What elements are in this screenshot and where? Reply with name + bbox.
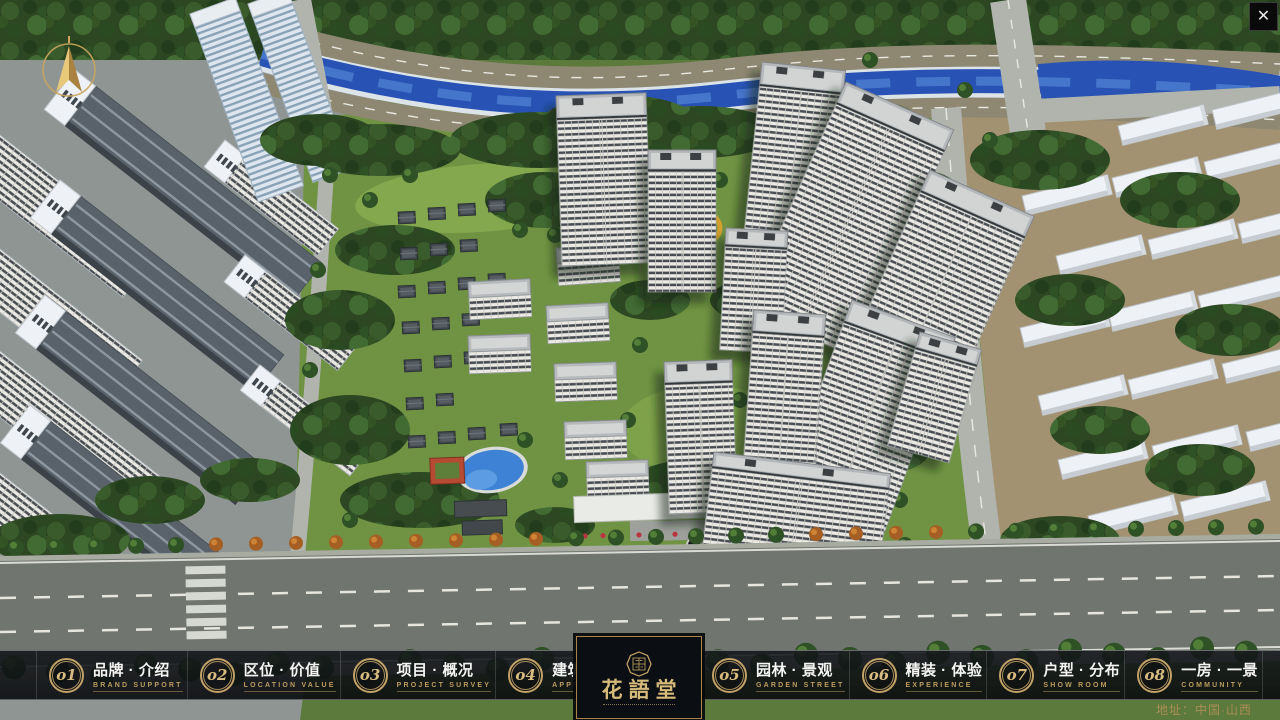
logo-divider <box>603 704 675 705</box>
nav-title: 项目 · 概况 <box>397 659 491 680</box>
nav-subtitle: EXPERIENCE <box>906 682 983 692</box>
nav-title: 品牌 · 介绍 <box>93 659 183 680</box>
nav-number-badge: o7 <box>999 658 1034 693</box>
nav-subtitle: SHOW ROOM <box>1043 682 1120 692</box>
nav-item-brand[interactable]: o1 品牌 · 介绍 BRAND SUPPORT <box>37 651 188 699</box>
nav-group-left: o1 品牌 · 介绍 BRAND SUPPORT o2 区位 · 价值 LOCA… <box>36 651 578 699</box>
nav-number-badge: o8 <box>1137 658 1172 693</box>
nav-subtitle: GARDEN STREET <box>756 682 845 692</box>
nav-subtitle: BRAND SUPPORT <box>93 682 183 692</box>
nav-number-badge: o4 <box>508 658 543 693</box>
nav-subtitle: COMMUNITY <box>1181 682 1258 692</box>
nav-number-badge: o2 <box>200 658 235 693</box>
nav-item-floorplan[interactable]: o7 户型 · 分布 SHOW ROOM <box>987 651 1125 699</box>
nav-title: 一房 · 一景 <box>1181 659 1258 680</box>
nav-item-location[interactable]: o2 区位 · 价值 LOCATION VALUE <box>188 651 341 699</box>
nav-title: 精装 · 体验 <box>906 659 983 680</box>
nav-title: 户型 · 分布 <box>1043 659 1120 680</box>
nav-number-badge: o5 <box>712 658 747 693</box>
sales-presentation-screen: ✕ o1 品牌 · 介绍 BRAND SUPPORT o2 区位 · 价值 LO… <box>0 0 1280 720</box>
compass-icon <box>36 34 102 100</box>
nav-title: 区位 · 价值 <box>244 659 336 680</box>
nav-subtitle: PROJECT SURVEY <box>397 682 491 692</box>
nav-item-interior[interactable]: o6 精装 · 体验 EXPERIENCE <box>850 651 988 699</box>
nav-title: 园林 · 景观 <box>756 659 845 680</box>
close-icon[interactable]: ✕ <box>1249 2 1278 31</box>
nav-item-views[interactable]: o8 一房 · 一景 COMMUNITY <box>1125 651 1263 699</box>
address-label: 地址：中国·山西 <box>1156 701 1252 718</box>
nav-number-badge: o6 <box>862 658 897 693</box>
project-logo-panel[interactable]: 花語堂 <box>576 636 702 719</box>
project-name: 花語堂 <box>596 679 683 700</box>
nav-item-project[interactable]: o3 项目 · 概况 PROJECT SURVEY <box>341 651 496 699</box>
nav-number-badge: o3 <box>353 658 388 693</box>
seal-emblem-icon <box>626 651 652 677</box>
aerial-render <box>0 0 1280 720</box>
nav-item-garden[interactable]: o5 园林 · 景观 GARDEN STREET <box>700 651 850 699</box>
nav-group-right: o5 园林 · 景观 GARDEN STREET o6 精装 · 体验 EXPE… <box>700 651 1245 699</box>
nav-number-badge: o1 <box>49 658 84 693</box>
nav-subtitle: LOCATION VALUE <box>244 682 336 692</box>
